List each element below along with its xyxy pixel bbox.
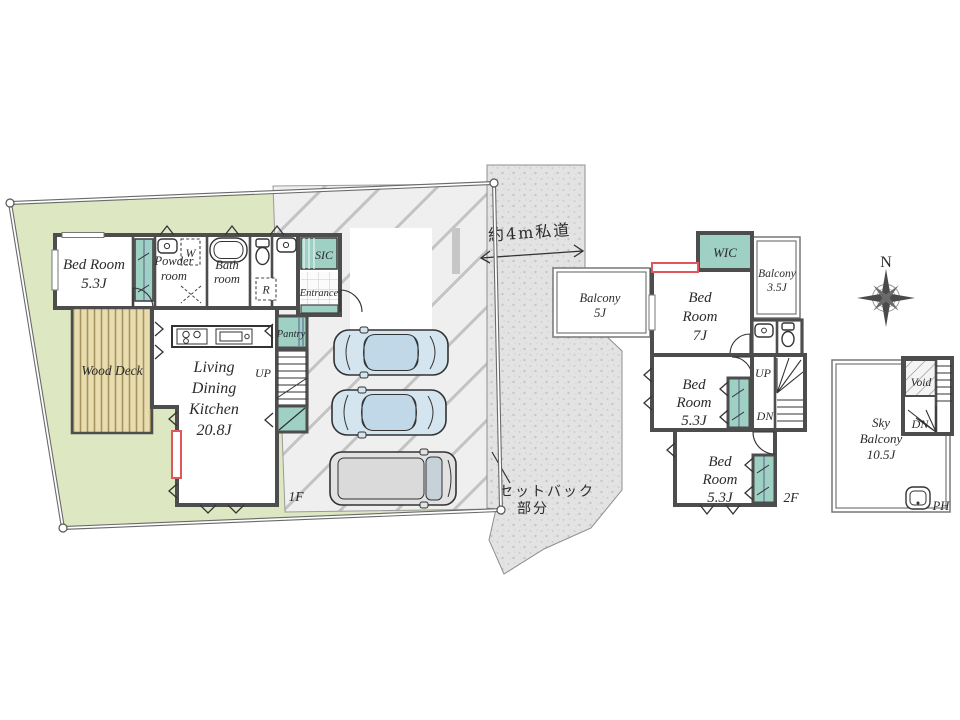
setback-label-2: 部分 bbox=[517, 501, 549, 517]
balcony35-label-2: 3.5J bbox=[766, 282, 787, 294]
bedroom53a-label-2: Room bbox=[676, 395, 712, 411]
ph-sink-icon bbox=[906, 487, 930, 509]
compass-star bbox=[857, 269, 915, 327]
entrance-porch bbox=[350, 228, 432, 332]
bedroom1f-window bbox=[52, 250, 58, 290]
bedroom7-label-2: Room bbox=[682, 309, 718, 325]
compass-north-label: N bbox=[880, 254, 892, 271]
floor-plan-page: 約4m私道 セットバック 部分 bbox=[0, 0, 960, 720]
entrance-label: Entrance bbox=[299, 288, 339, 299]
void-label: Void bbox=[911, 377, 932, 389]
fridge-label: R bbox=[261, 283, 270, 297]
up-1f-label: UP bbox=[255, 366, 272, 380]
pantry-label: Pantry bbox=[276, 329, 306, 340]
floor-1f-label: 1F bbox=[289, 489, 305, 504]
car-sedan-1 bbox=[334, 327, 448, 378]
car-sedan-2 bbox=[332, 387, 446, 438]
bedroom7-window-red bbox=[652, 263, 698, 272]
powder-basin-icon bbox=[158, 239, 177, 253]
ldk-label-1: Living bbox=[193, 359, 235, 376]
ldk-label-2: Dining bbox=[191, 380, 236, 397]
bedroom53a-label-3: 5.3J bbox=[681, 413, 708, 429]
wall-stub bbox=[452, 228, 460, 274]
floor-plan-svg: 約4m私道 セットバック 部分 bbox=[0, 0, 960, 720]
bedroom7-window bbox=[649, 295, 655, 330]
bedroom7-label-1: Bed bbox=[688, 290, 712, 306]
car-van bbox=[330, 449, 456, 508]
ldk-label-3: Kitchen bbox=[188, 401, 239, 418]
compass-rose: N bbox=[857, 254, 915, 327]
up-2f-label: UP bbox=[755, 366, 772, 380]
bath-label-2: room bbox=[214, 272, 240, 286]
bedroom53b-label-1: Bed bbox=[708, 454, 732, 470]
bedroom1f-label-2: 5.3J bbox=[81, 276, 108, 292]
balcony5-label-2: 5J bbox=[594, 306, 607, 320]
balcony5-label-1: Balcony bbox=[580, 291, 621, 305]
ldk-window-red bbox=[172, 431, 181, 478]
bedroom53b-label-3: 5.3J bbox=[707, 490, 734, 506]
balcony35-label-1: Balcony bbox=[758, 268, 797, 280]
bedroom53a-label-1: Bed bbox=[682, 377, 706, 393]
bedroom1f-window-top bbox=[62, 233, 104, 238]
dn-2f-label: DN bbox=[756, 409, 775, 423]
powder-label-1: Powder bbox=[154, 254, 194, 268]
sic-label: SIC bbox=[315, 248, 334, 262]
sky-balcony-label-1: Sky bbox=[872, 415, 890, 430]
entrance-step bbox=[301, 305, 338, 313]
toilet1f-icon bbox=[256, 239, 269, 265]
hall-basin-icon bbox=[277, 238, 296, 252]
floor-ph-label: PH bbox=[932, 499, 951, 513]
wood-deck-label: Wood Deck bbox=[81, 363, 143, 378]
kitchen-counter bbox=[172, 326, 272, 347]
sky-balcony-label-3: 10.5J bbox=[867, 447, 897, 462]
parked-cars bbox=[330, 327, 456, 508]
toilet-2f-icon bbox=[782, 323, 794, 347]
bath-label-1: Bath bbox=[215, 258, 239, 272]
bedroom1f-label-1: Bed Room bbox=[63, 257, 125, 273]
bedroom53b-label-2: Room bbox=[702, 472, 738, 488]
dn-ph-label: DN bbox=[911, 417, 930, 431]
sky-balcony-label-2: Balcony bbox=[860, 431, 903, 446]
setback-label-1: セットバック bbox=[499, 484, 595, 500]
floor-2f-label: 2F bbox=[784, 490, 800, 505]
wic-label: WIC bbox=[713, 245, 737, 260]
powder-label-2: room bbox=[161, 269, 187, 283]
bedroom7-label-3: 7J bbox=[693, 328, 709, 344]
plan-ph: Sky Balcony 10.5J Void DN PH bbox=[832, 358, 952, 513]
basin-2f-icon bbox=[755, 324, 773, 337]
ldk-label-4: 20.8J bbox=[196, 422, 232, 439]
